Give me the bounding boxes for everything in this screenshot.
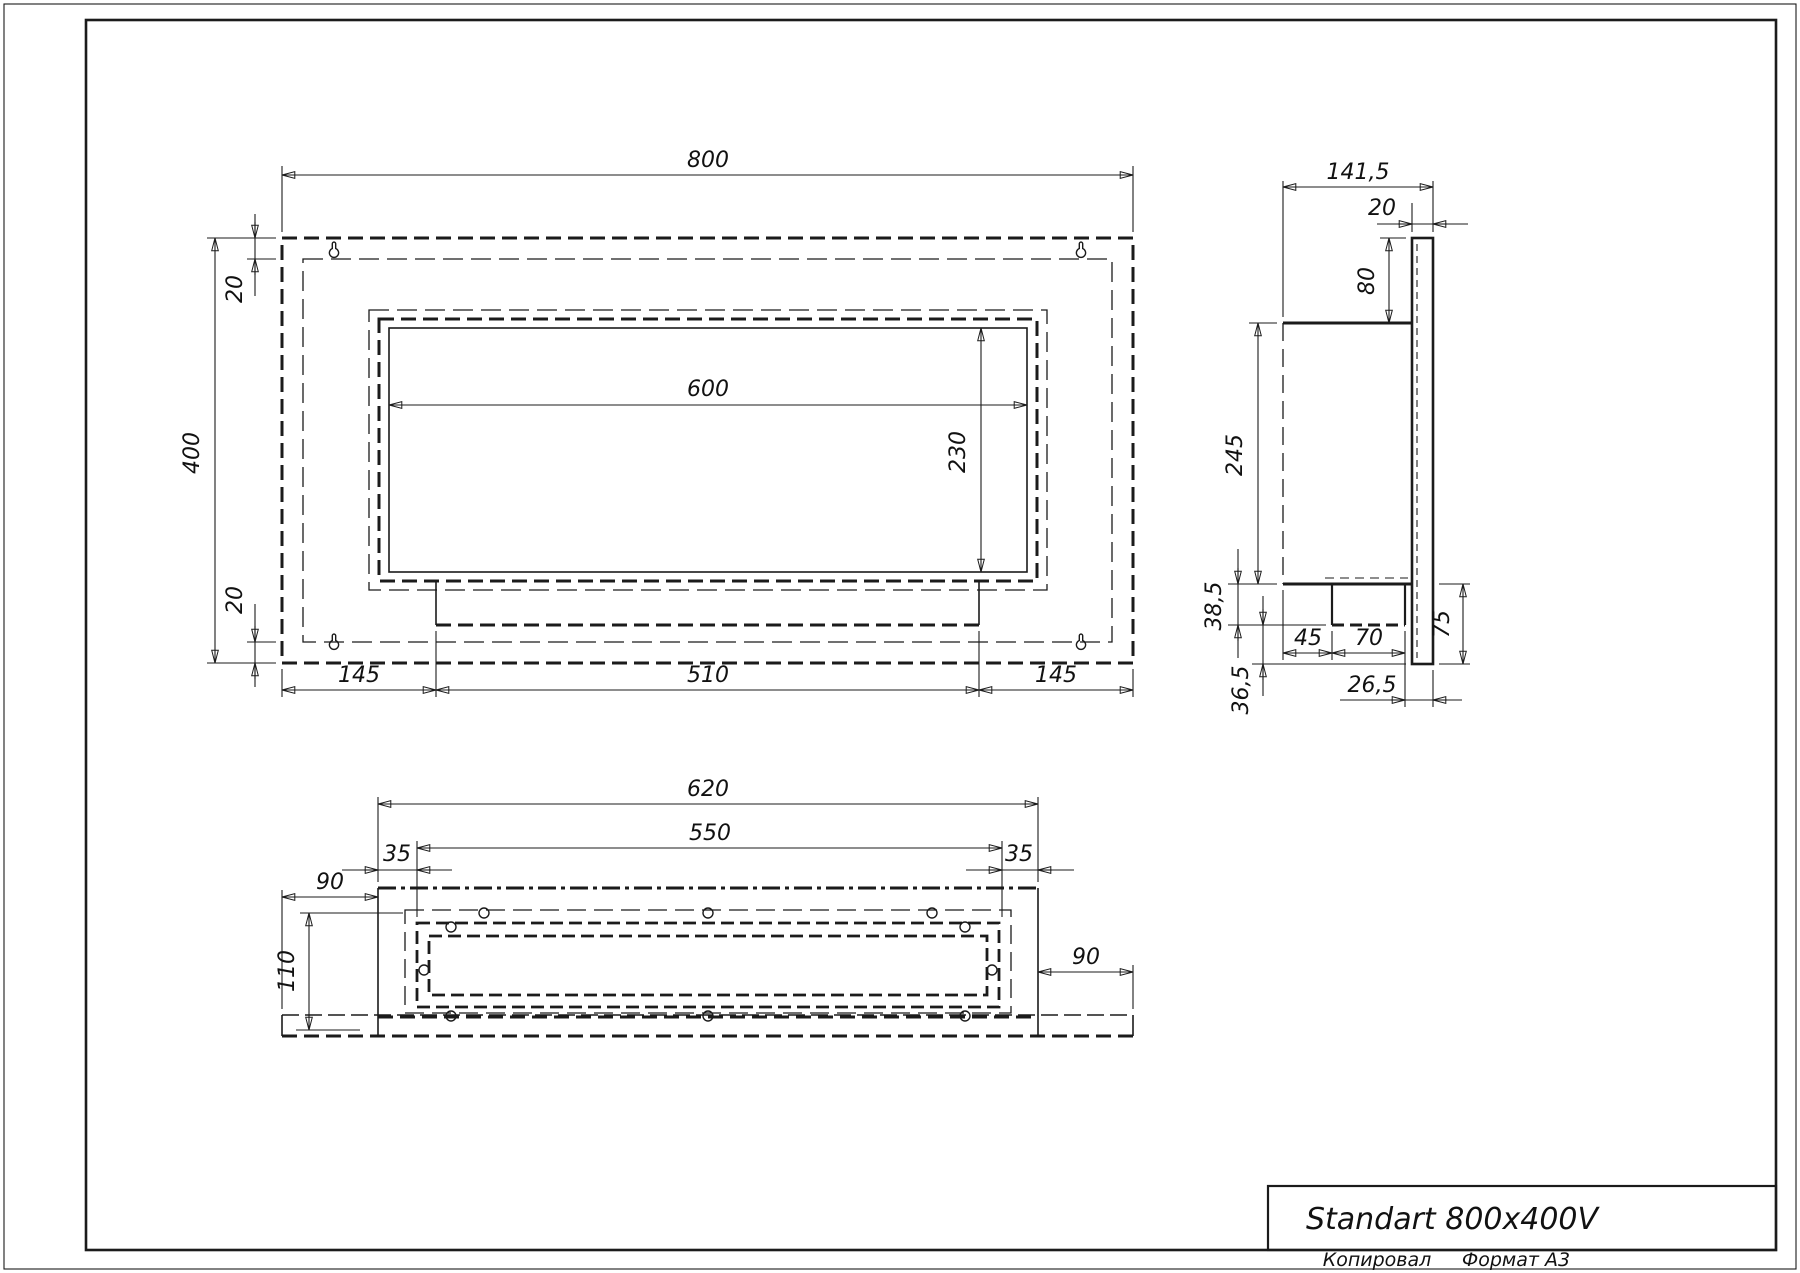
dim-bottom-inner-depth: 110 — [275, 950, 300, 992]
dim-bottom-margin-right: 35 — [1005, 842, 1033, 867]
side-view-dimensions: 141,5 20 80 245 38,5 45 70 75 26,5 — [1202, 160, 1470, 714]
dim-bottom-plate-ext-right: 90 — [1072, 945, 1100, 970]
front-view-dimensions: 800 400 20 20 600 230 145 510 145 — [180, 148, 1133, 697]
drawing-canvas: 800 400 20 20 600 230 145 510 145 — [0, 0, 1800, 1273]
dim-side-step-height: 38,5 — [1202, 582, 1227, 631]
bottom-view-geometry — [282, 888, 1133, 1036]
dim-bottom-margin-left: 35 — [383, 842, 411, 867]
dim-front-tray-width: 510 — [687, 663, 729, 688]
page-frame — [4, 4, 1796, 1269]
sheet-footer: Копировал Формат A3 — [1323, 1249, 1570, 1271]
dim-bottom-body-width: 620 — [687, 777, 729, 802]
bottom-view-dimensions: 620 550 35 35 90 110 90 — [275, 777, 1133, 1030]
dim-front-top-offset: 20 — [223, 275, 248, 303]
keyhole-slot-icon — [329, 242, 338, 257]
dim-side-step-width: 70 — [1355, 626, 1383, 651]
drawing-sheet: 800 400 20 20 600 230 145 510 145 — [0, 0, 1800, 1273]
dim-front-bottom-offset: 20 — [223, 586, 248, 614]
dim-front-margin-right: 145 — [1035, 663, 1077, 688]
dim-side-top-drop: 80 — [1355, 267, 1380, 295]
dim-front-margin-left: 145 — [338, 663, 380, 688]
keyhole-slot-icon — [1076, 242, 1085, 257]
footer-copied-label: Копировал — [1323, 1249, 1432, 1271]
dim-side-rear-gap: 26,5 — [1348, 673, 1397, 698]
drawing-title: Standart 800x400V — [1306, 1202, 1601, 1237]
side-view-geometry — [1283, 238, 1433, 664]
dim-front-opening-height: 230 — [946, 431, 971, 473]
dim-front-width: 800 — [687, 148, 729, 173]
dim-side-plate-thickness: 20 — [1368, 196, 1396, 221]
dim-side-depth: 141,5 — [1327, 160, 1390, 185]
dim-side-bottom-gap: 36,5 — [1229, 666, 1254, 715]
screw-holes — [419, 908, 997, 1021]
footer-format-label: Формат A3 — [1462, 1249, 1570, 1271]
dim-front-height: 400 — [180, 432, 205, 474]
dim-bottom-slot-width: 550 — [689, 821, 731, 846]
title-block: Standart 800x400V — [1268, 1186, 1776, 1250]
dim-front-opening-width: 600 — [687, 377, 729, 402]
dim-side-lower-height: 75 — [1430, 610, 1455, 638]
dim-side-body-height: 245 — [1223, 434, 1248, 476]
dim-bottom-plate-ext-left: 90 — [316, 870, 344, 895]
front-view-geometry — [282, 238, 1133, 663]
dim-side-step-offset: 45 — [1294, 626, 1322, 651]
